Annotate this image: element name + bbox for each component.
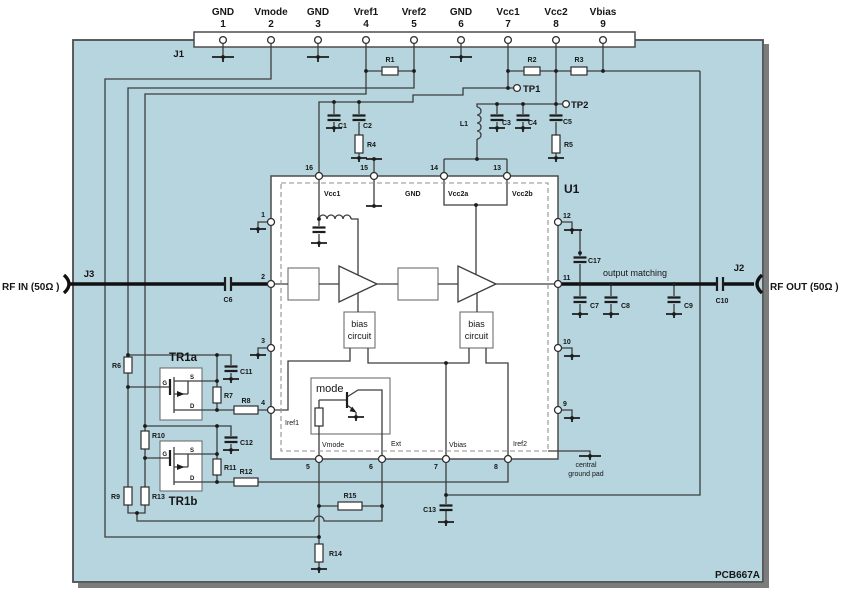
- j1-pin9-name: Vbias: [590, 7, 617, 18]
- resistor-R6: [124, 357, 132, 373]
- u1-pin15-num: 15: [360, 165, 368, 172]
- resistor-R4: [355, 135, 363, 153]
- u1-iref2-label: Iref2: [513, 441, 527, 448]
- j1-pin2-name: Vmode: [254, 7, 288, 18]
- u1-vcc2a-label: Vcc2a: [448, 191, 468, 198]
- r11-label: R11: [224, 465, 237, 472]
- mode-label: mode: [316, 383, 344, 395]
- tr1b-label: TR1b: [169, 496, 198, 508]
- c12-label: C12: [240, 440, 253, 447]
- r7-label: R7: [224, 393, 233, 400]
- r5-label: R5: [564, 142, 573, 149]
- resistor-R3: [571, 67, 587, 75]
- tr1b-s-label: S: [190, 448, 194, 454]
- r9-label: R9: [111, 494, 120, 501]
- tr1a-d-label: D: [190, 404, 195, 410]
- j1-pin4-num: 4: [363, 19, 369, 30]
- resistor-R14: [315, 544, 323, 562]
- c4-label: C4: [528, 120, 537, 127]
- resistor-R5: [552, 135, 560, 153]
- c1-label: C1: [338, 123, 347, 130]
- u1-pin3-num: 3: [261, 338, 265, 345]
- tp1-label: TP1: [523, 84, 541, 95]
- j1-pin7-name: Vcc1: [496, 7, 520, 18]
- u1-ref: U1: [564, 182, 580, 196]
- schematic-canvas: GND Vmode GND Vref1 Vref2 GND Vcc1 Vcc2 …: [0, 0, 850, 594]
- u1-pin13-num: 13: [493, 165, 501, 172]
- board-name-label: PCB667A: [715, 570, 760, 581]
- tp1-point: [514, 85, 521, 92]
- c10-label: C10: [716, 298, 729, 305]
- u1-gnd-label: GND: [405, 191, 421, 198]
- c17-label: C17: [588, 258, 601, 265]
- u1-vmode-label: Vmode: [322, 442, 344, 449]
- bias2-line1: bias: [468, 319, 485, 329]
- c9-label: C9: [684, 303, 693, 310]
- rf-in-connector-icon: [64, 275, 69, 293]
- interstage-match-block: [398, 268, 438, 300]
- j1-pin1-num: 1: [220, 19, 226, 30]
- resistor-R12: [234, 478, 258, 486]
- u1-vbias-label: Vbias: [449, 442, 467, 449]
- j1-pin5-name: Vref2: [402, 7, 427, 18]
- tp2-point: [563, 101, 570, 108]
- r1-label: R1: [386, 57, 395, 64]
- resistor-R8: [234, 406, 258, 414]
- bias2-line2: circuit: [465, 331, 489, 341]
- j3-ref: J3: [84, 269, 95, 280]
- u1-pin8-num: 8: [494, 464, 498, 471]
- resistor-R11: [213, 459, 221, 475]
- c13-label: C13: [423, 507, 436, 514]
- u1-pin4-num: 4: [261, 400, 265, 407]
- u1-ext-label: Ext: [391, 441, 401, 448]
- tr1a-g-label: G: [162, 381, 167, 387]
- j1-ref: J1: [173, 49, 184, 60]
- u1-pin9-num: 9: [563, 401, 567, 408]
- c6-label: C6: [224, 297, 233, 304]
- c2-label: C2: [363, 123, 372, 130]
- u1-pin11-num: 11: [563, 275, 571, 282]
- c7-label: C7: [590, 303, 599, 310]
- r15-label: R15: [344, 493, 357, 500]
- u1-vcc1-label: Vcc1: [324, 191, 340, 198]
- u1-iref1-label: Iref1: [285, 420, 299, 427]
- resistor-R13: [141, 487, 149, 505]
- r6-label: R6: [112, 363, 121, 370]
- resistor-R2: [524, 67, 540, 75]
- bias1-line1: bias: [351, 319, 368, 329]
- u1-pin14-num: 14: [430, 165, 438, 172]
- r12-label: R12: [240, 469, 253, 476]
- board-shadow-right: [764, 44, 769, 588]
- resistor-R7: [213, 387, 221, 403]
- rf-in-label: RF IN (50Ω ): [2, 282, 59, 293]
- c5-label: C5: [563, 119, 572, 126]
- board-shadow-bottom: [78, 583, 769, 588]
- r8-label: R8: [242, 398, 251, 405]
- central-pad-line2: ground pad: [568, 471, 604, 478]
- j2-ref: J2: [734, 263, 745, 274]
- r10-label: R10: [152, 433, 165, 440]
- u1-pin12-num: 12: [563, 213, 571, 220]
- j1-pin6-num: 6: [458, 19, 464, 30]
- r2-label: R2: [528, 57, 537, 64]
- output-matching-label: output matching: [603, 268, 667, 278]
- c3-label: C3: [502, 120, 511, 127]
- rf-out-label: RF OUT (50Ω ): [770, 282, 839, 293]
- schematic-page: GND Vmode GND Vref1 Vref2 GND Vcc1 Vcc2 …: [0, 0, 850, 594]
- j1-pin8-num: 8: [553, 19, 559, 30]
- j1-pin5-num: 5: [411, 19, 417, 30]
- u1-pin1-num: 1: [261, 212, 265, 219]
- r4-label: R4: [367, 142, 376, 149]
- input-match-block: [288, 268, 319, 300]
- j1-pin8-name: Vcc2: [544, 7, 568, 18]
- resistor-R9: [124, 487, 132, 505]
- bias-circuit-2-box: [460, 312, 493, 348]
- j1-pin7-num: 7: [505, 19, 511, 30]
- u1-pin5-num: 5: [306, 464, 310, 471]
- r14-label: R14: [329, 551, 342, 558]
- j1-pin3-num: 3: [315, 19, 321, 30]
- r13-label: R13: [152, 494, 165, 501]
- u1-pin10-num: 10: [563, 339, 571, 346]
- central-pad-line1: central: [575, 462, 596, 469]
- resistor-R1: [382, 67, 398, 75]
- u1-vcc2b-label: Vcc2b: [512, 191, 533, 198]
- j1-pin4-name: Vref1: [354, 7, 379, 18]
- u1-pin6-num: 6: [369, 464, 373, 471]
- tr1b-g-label: G: [162, 452, 167, 458]
- j1-pin3-name: GND: [307, 7, 329, 18]
- c8-label: C8: [621, 303, 630, 310]
- j1-pin9-num: 9: [600, 19, 606, 30]
- resistor-R15: [338, 502, 362, 510]
- resistor-R10: [141, 431, 149, 449]
- bias1-line2: circuit: [348, 331, 372, 341]
- tr1a-label: TR1a: [169, 352, 198, 364]
- j1-pin1-name: GND: [212, 7, 234, 18]
- tp2-label: TP2: [571, 100, 588, 111]
- u1-pin2-num: 2: [261, 274, 265, 281]
- tr1a-s-label: S: [190, 375, 194, 381]
- u1-pin7-num: 7: [434, 464, 438, 471]
- c11-label: C11: [240, 369, 253, 376]
- mode-resistor: [315, 408, 323, 426]
- l1-label: L1: [460, 121, 468, 128]
- j1-pin2-num: 2: [268, 19, 274, 30]
- bias-circuit-1-box: [344, 312, 375, 348]
- u1-pin16-num: 16: [305, 165, 313, 172]
- r3-label: R3: [575, 57, 584, 64]
- tr1b-d-label: D: [190, 476, 195, 482]
- j1-pin6-name: GND: [450, 7, 472, 18]
